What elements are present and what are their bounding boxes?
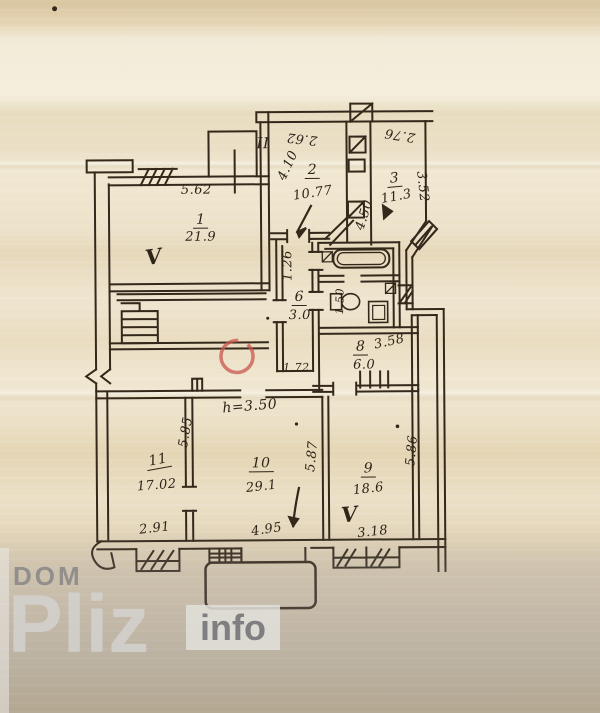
room-9-side-dim: 5.86 <box>403 435 421 467</box>
room-9-number: 9 <box>361 460 377 477</box>
room-1-top-dim: 5.62 <box>181 183 212 198</box>
watermark-pliz: Pliz <box>8 578 149 672</box>
room-8-number: 8 <box>353 339 369 356</box>
room-1-checkmark: V <box>144 243 164 270</box>
room-6-number: 6 <box>292 289 308 306</box>
watermark-info: info <box>200 607 266 649</box>
photographed-floor-plan: 5.62 1 21.9 V 2.62 4.10 2 10.77 2.76 3 1… <box>0 0 600 713</box>
room-3-number: 3 <box>386 170 403 188</box>
room-9-checkmark: V <box>340 501 359 527</box>
room-10-side-dim: 5.87 <box>303 440 321 472</box>
room-2-number: 2 <box>305 162 321 179</box>
room-6-side-dim: 1.26 <box>280 250 295 281</box>
room-1-number: 1 <box>193 212 209 229</box>
sink-icon <box>368 283 395 322</box>
watermark-info-box: info <box>186 605 280 650</box>
room-1-area: 21.9 <box>185 230 216 245</box>
bath-dim: 1.50 <box>333 288 347 315</box>
bathtub-icon <box>322 249 389 267</box>
room-6-area: 3.0 <box>289 308 311 323</box>
wall-mark-ii: II <box>256 134 269 152</box>
stairs-icon <box>122 303 158 343</box>
room-10-number: 10 <box>249 455 274 472</box>
room-6-bottom-dim: 1.72 <box>283 361 310 374</box>
room-11-area: 17.02 <box>136 477 177 495</box>
window-sills-and-porch <box>136 547 399 609</box>
red-circle-annotation <box>214 334 259 379</box>
room-8-area: 6.0 <box>353 357 375 372</box>
